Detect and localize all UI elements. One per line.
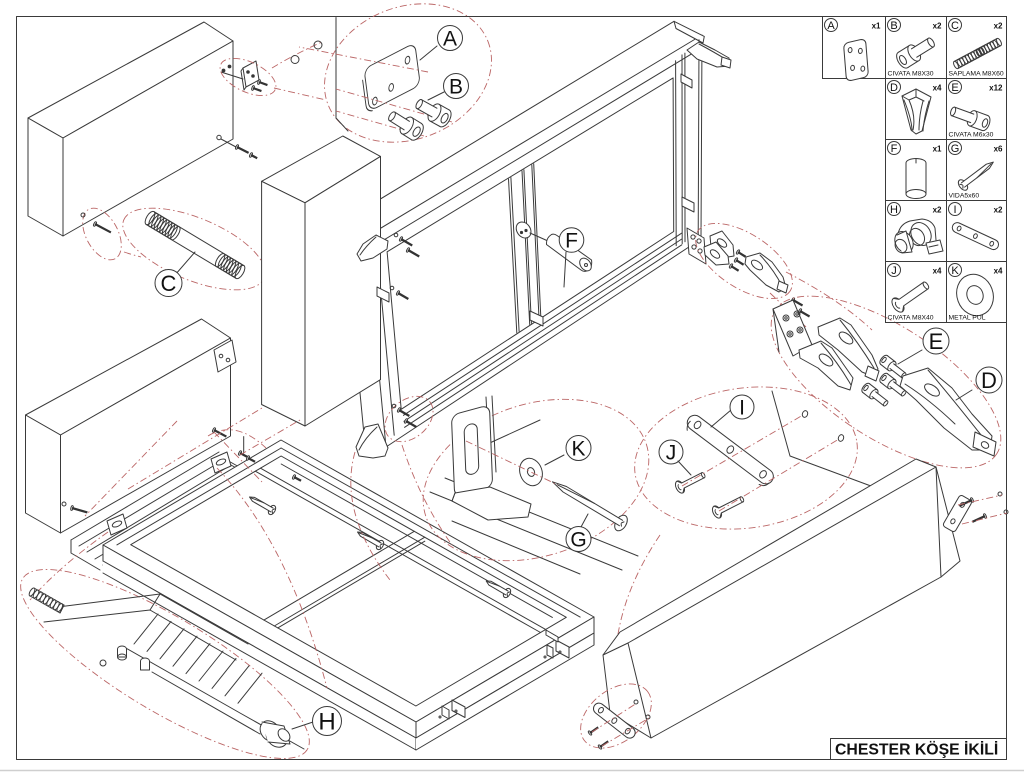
svg-text:G: G	[951, 143, 960, 155]
svg-text:x12: x12	[989, 84, 1003, 93]
svg-text:x2: x2	[933, 22, 942, 31]
svg-text:A: A	[827, 20, 835, 32]
svg-text:VIDA5x60: VIDA5x60	[949, 193, 980, 200]
svg-text:J: J	[891, 265, 897, 277]
svg-text:METAL PUL: METAL PUL	[949, 315, 986, 322]
svg-text:H: H	[318, 709, 335, 736]
svg-text:x2: x2	[994, 206, 1003, 215]
svg-text:x2: x2	[994, 22, 1003, 31]
svg-text:x1: x1	[933, 145, 942, 154]
svg-text:D: D	[890, 82, 898, 94]
svg-text:C: C	[161, 271, 177, 296]
svg-text:CHESTER KÖŞE İKİLİ: CHESTER KÖŞE İKİLİ	[835, 740, 998, 759]
svg-text:x4: x4	[933, 84, 942, 93]
svg-text:H: H	[890, 204, 898, 216]
svg-text:B: B	[890, 20, 897, 32]
svg-text:F: F	[891, 143, 898, 155]
svg-text:SAPLAMA M8X60: SAPLAMA M8X60	[949, 71, 1004, 78]
svg-text:x2: x2	[933, 206, 942, 215]
svg-text:CIVATA M8X30: CIVATA M8X30	[888, 71, 934, 78]
svg-text:I: I	[739, 397, 745, 420]
svg-text:E: E	[929, 329, 944, 354]
svg-text:CIVATA M6x30: CIVATA M6x30	[949, 132, 994, 139]
svg-text:CIVATA M8X40: CIVATA M8X40	[888, 315, 934, 322]
svg-text:I: I	[953, 204, 956, 216]
svg-text:B: B	[449, 76, 463, 99]
svg-text:D: D	[981, 368, 997, 393]
svg-text:F: F	[565, 230, 578, 253]
svg-text:J: J	[666, 442, 677, 465]
svg-text:A: A	[443, 28, 457, 51]
svg-text:x4: x4	[933, 267, 942, 276]
svg-text:G: G	[570, 529, 586, 552]
svg-text:K: K	[951, 265, 959, 277]
svg-text:x6: x6	[994, 145, 1003, 154]
svg-text:x4: x4	[994, 267, 1003, 276]
svg-text:C: C	[951, 20, 959, 32]
svg-text:x1: x1	[872, 22, 881, 31]
svg-text:K: K	[571, 438, 585, 461]
svg-text:E: E	[951, 82, 958, 94]
